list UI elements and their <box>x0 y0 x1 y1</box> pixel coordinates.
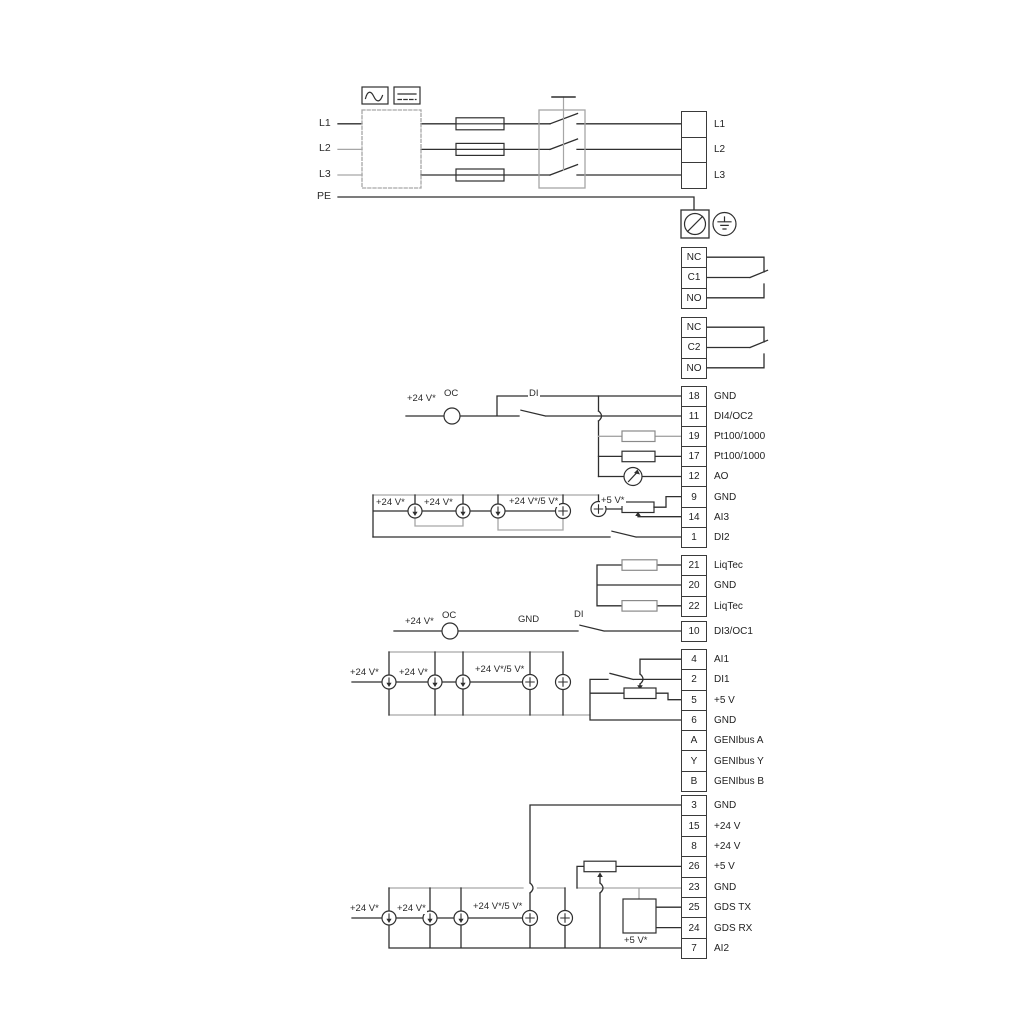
current-source-icon <box>382 911 396 925</box>
ac-symbol-box <box>362 87 388 104</box>
terminal-row: 11DI4/OC2 <box>681 406 901 427</box>
current-source-icon <box>382 675 396 689</box>
oc-label: OC <box>441 610 457 621</box>
terminal-row: 18GND <box>681 386 901 407</box>
power-output-terminal-block: L1L2L3 <box>681 111 901 189</box>
terminal-label: GND <box>714 486 736 507</box>
terminal-cell: 14 <box>681 507 707 528</box>
strip3-wiring <box>352 805 681 948</box>
oc-label: OC <box>443 388 459 399</box>
terminal-label: DI4/OC2 <box>714 406 753 427</box>
terminal-row: 2DI1 <box>681 669 901 690</box>
terminal-label: GND <box>714 710 736 731</box>
terminal-cell: NC <box>681 247 707 268</box>
terminal-cell: 4 <box>681 649 707 670</box>
voltage-source-icon <box>556 675 571 690</box>
terminal-cell: 11 <box>681 406 707 427</box>
control-terminal-strip-3: 3GND15+24 V8+24 V26+5 V23GND25GDS TX24GD… <box>681 795 901 959</box>
terminal-row: 6GND <box>681 710 901 731</box>
fuse-symbols <box>456 118 504 181</box>
terminal-cell: 15 <box>681 815 707 836</box>
terminal-row: 23GND <box>681 877 901 898</box>
current-source-icon <box>491 504 505 518</box>
di3-wiring <box>394 623 681 639</box>
supply-label: +24 V*/5 V* <box>472 901 523 912</box>
current-source-icon <box>456 504 470 518</box>
terminal-row: C1 <box>681 267 901 288</box>
current-source-icon <box>454 911 468 925</box>
terminal-cell: 3 <box>681 795 707 816</box>
terminal-label: LiqTec <box>714 555 743 576</box>
terminal-cell: 6 <box>681 710 707 731</box>
potentiometer-symbol <box>584 861 616 872</box>
strip1-wiring <box>373 396 681 537</box>
current-source-icon <box>408 504 422 518</box>
terminal-label: LiqTec <box>714 596 743 617</box>
voltage-source-icon <box>523 911 538 926</box>
relay1-terminal-block: NCC1NO <box>681 247 901 309</box>
terminal-cell: 9 <box>681 486 707 507</box>
liqtec-terminal-strip: 21LiqTec20GND22LiqTec <box>681 555 901 617</box>
pe-terminal-icons <box>681 210 736 238</box>
terminal-cell: B <box>681 771 707 792</box>
resistor-symbol <box>622 451 655 462</box>
terminal-label: L3 <box>714 162 725 189</box>
terminal-row: L3 <box>681 162 901 189</box>
terminal-cell: 2 <box>681 669 707 690</box>
current-source-icon <box>456 675 470 689</box>
supply-label: +24 V* <box>349 903 380 914</box>
di2-contact <box>373 531 681 537</box>
di-label: DI <box>528 388 540 399</box>
terminal-row: 24GDS RX <box>681 917 901 938</box>
gnd-label: GND <box>517 614 540 625</box>
supply-label: +24 V* <box>423 497 454 508</box>
control-terminal-strip-1: 18GND11DI4/OC219Pt100/100017Pt100/100012… <box>681 386 901 548</box>
terminal-row: NO <box>681 358 901 379</box>
terminal-row: L1 <box>681 111 901 138</box>
terminal-row: NO <box>681 288 901 309</box>
supply-label: +24 V* <box>349 667 380 678</box>
terminal-cell: C1 <box>681 267 707 288</box>
voltage-source-icon <box>558 911 573 926</box>
terminal-cell: 22 <box>681 596 707 617</box>
terminal-cell: 12 <box>681 466 707 487</box>
voltage-source-icon <box>523 675 538 690</box>
terminal-row: 14AI3 <box>681 507 901 528</box>
terminal-row: YGENIbus Y <box>681 750 901 771</box>
relay2-terminal-block: NCC2NO <box>681 317 901 379</box>
terminal-row: AGENIbus A <box>681 730 901 751</box>
mains-stub-gray <box>338 149 362 175</box>
terminal-label: Pt100/1000 <box>714 446 765 467</box>
supply-label: +24 V* <box>396 903 427 914</box>
terminal-label: +5 V <box>714 856 735 877</box>
potentiometer-symbol <box>622 502 654 513</box>
terminal-label: AI3 <box>714 507 729 528</box>
terminal-cell: 17 <box>681 446 707 467</box>
strip2-wiring <box>352 652 681 720</box>
terminal-cell: 23 <box>681 877 707 898</box>
terminal-cell: NO <box>681 358 707 379</box>
terminal-row: 1DI2 <box>681 527 901 548</box>
terminal-label: L1 <box>714 111 725 138</box>
terminal-cell: 24 <box>681 917 707 938</box>
terminal-row: 26+5 V <box>681 856 901 877</box>
oc-circle-icon <box>444 408 460 424</box>
terminal-cell: 8 <box>681 836 707 857</box>
terminal-cell: 18 <box>681 386 707 407</box>
supply-label: +24 V*/5 V* <box>508 496 559 507</box>
terminal-cell: 19 <box>681 426 707 447</box>
terminal-cell: C2 <box>681 337 707 358</box>
terminal-cell <box>681 137 707 164</box>
terminal-row: 7AI2 <box>681 938 901 959</box>
mains-label-l3: L3 <box>319 168 331 180</box>
resistor-symbol <box>622 601 657 612</box>
terminal-label: DI3/OC1 <box>714 621 753 642</box>
gds-sensor-box <box>623 899 656 933</box>
terminal-cell: NC <box>681 317 707 338</box>
dc-symbol-box <box>394 87 420 104</box>
terminal-label: GDS RX <box>714 917 752 938</box>
wiper-arrow <box>597 872 603 877</box>
terminal-label: DI2 <box>714 527 730 548</box>
terminal-label: GND <box>714 575 736 596</box>
terminal-cell <box>681 111 707 138</box>
wiring-diagram: L1 L2 L3 PE L1L2L3 NCC1NO NCC2NO 18GND11… <box>0 0 1024 1024</box>
supply-label: +24 V* <box>375 497 406 508</box>
terminal-row: 12AO <box>681 466 901 487</box>
terminal-label: Pt100/1000 <box>714 426 765 447</box>
current-source-icon <box>428 675 442 689</box>
terminal-label: GND <box>714 877 736 898</box>
liqtec-wiring <box>597 560 681 611</box>
terminal-row: 15+24 V <box>681 815 901 836</box>
terminal-row: 3GND <box>681 795 901 816</box>
potentiometer-symbol <box>624 688 656 699</box>
mains-lines <box>338 124 694 210</box>
terminal-cell: 21 <box>681 555 707 576</box>
terminal-label: DI1 <box>714 669 730 690</box>
oc-circle-icon <box>442 623 458 639</box>
ao-meter-icon <box>599 468 682 486</box>
terminal-row: 10DI3/OC1 <box>681 621 901 642</box>
terminal-label: GND <box>714 795 736 816</box>
terminal-label: L2 <box>714 137 725 164</box>
mains-label-l1: L1 <box>319 117 331 129</box>
resistor-symbol <box>622 560 657 571</box>
supply-label: +24 V* <box>404 616 435 627</box>
supply-label: +24 V* <box>398 667 429 678</box>
terminal-row: 5+5 V <box>681 690 901 711</box>
terminal-row: BGENIbus B <box>681 771 901 792</box>
mains-label-pe: PE <box>317 190 331 202</box>
terminal-cell: 1 <box>681 527 707 548</box>
terminal-label: GENIbus B <box>714 771 764 792</box>
terminal-row: 20GND <box>681 575 901 596</box>
terminal-cell: A <box>681 730 707 751</box>
terminal-row: NC <box>681 247 901 268</box>
terminal-label: AI1 <box>714 649 729 670</box>
rfi-filter-box <box>362 110 421 188</box>
terminal-row: 19Pt100/1000 <box>681 426 901 447</box>
terminal-cell: 20 <box>681 575 707 596</box>
terminal-row: NC <box>681 317 901 338</box>
terminal-cell: 25 <box>681 897 707 918</box>
terminal-label: GENIbus A <box>714 730 763 751</box>
earth-ground-icon <box>713 213 736 236</box>
terminal-row: 4AI1 <box>681 649 901 670</box>
terminal-row: 8+24 V <box>681 836 901 857</box>
terminal-cell: 7 <box>681 938 707 959</box>
terminal-cell: Y <box>681 750 707 771</box>
terminal-label: GND <box>714 386 736 407</box>
terminal-label: AO <box>714 466 728 487</box>
mains-label-l2: L2 <box>319 142 331 154</box>
terminal-cell: 5 <box>681 690 707 711</box>
supply-label: +5 V* <box>600 495 626 506</box>
terminal-cell <box>681 162 707 189</box>
terminal-row: L2 <box>681 137 901 164</box>
supply-label: +5 V* <box>623 935 649 946</box>
terminal-row: C2 <box>681 337 901 358</box>
terminal-label: +5 V <box>714 690 735 711</box>
terminal-label: AI2 <box>714 938 729 959</box>
terminal-cell: 10 <box>681 621 707 642</box>
terminal-cell: NO <box>681 288 707 309</box>
terminal-label: GDS TX <box>714 897 751 918</box>
terminal-row: 17Pt100/1000 <box>681 446 901 467</box>
ai3-potentiometer <box>622 497 681 517</box>
supply-label: +24 V*/5 V* <box>474 664 525 675</box>
mains-input-wiring <box>338 87 736 238</box>
resistor-symbol <box>622 431 655 442</box>
terminal-label: GENIbus Y <box>714 750 764 771</box>
terminal-row: 9GND <box>681 486 901 507</box>
di-label: DI <box>573 609 585 620</box>
ai3-supply-sources <box>373 495 622 537</box>
di3-terminal-strip: 10DI3/OC1 <box>681 621 901 642</box>
control-terminal-strip-2: 4AI12DI15+5 V6GNDAGENIbus AYGENIbus YBGE… <box>681 649 901 792</box>
terminal-row: 22LiqTec <box>681 596 901 617</box>
supply-label: +24 V* <box>406 393 437 404</box>
terminal-label: +24 V <box>714 836 740 857</box>
terminal-cell: 26 <box>681 856 707 877</box>
terminal-row: 21LiqTec <box>681 555 901 576</box>
terminal-label: +24 V <box>714 815 740 836</box>
terminal-row: 25GDS TX <box>681 897 901 918</box>
